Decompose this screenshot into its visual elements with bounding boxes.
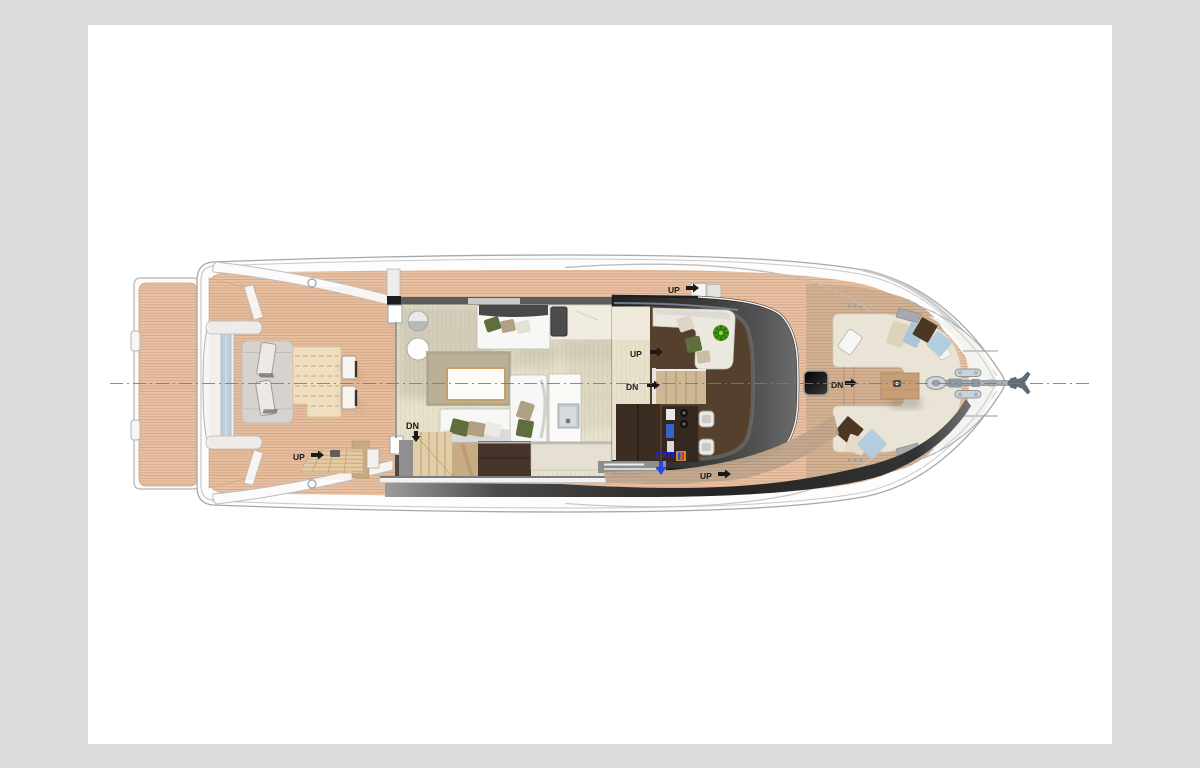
svg-text:UP: UP [293,452,305,462]
svg-text:DN: DN [406,421,419,431]
svg-text:DN: DN [831,380,843,390]
svg-text:UP: UP [700,471,712,481]
svg-text:EXIT: EXIT [656,450,676,460]
svg-text:UP: UP [668,285,680,295]
svg-text:UP: UP [630,349,642,359]
